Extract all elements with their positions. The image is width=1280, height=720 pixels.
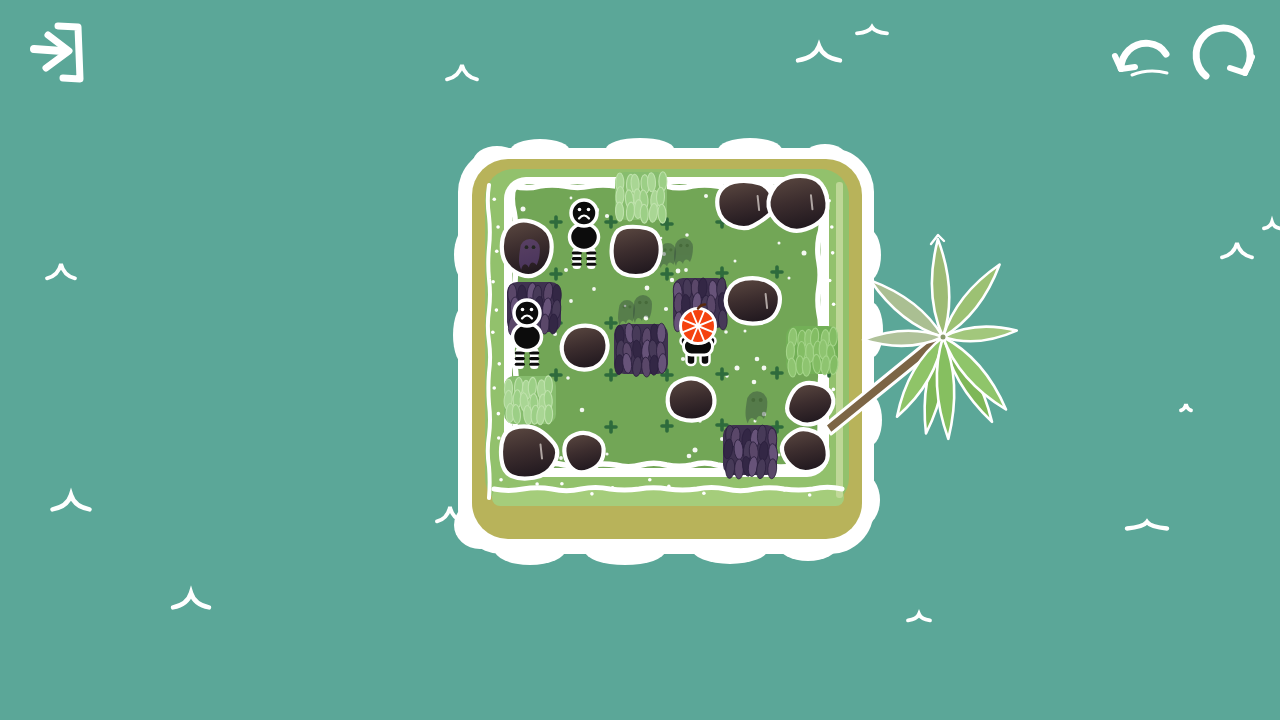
foam-blob [606, 138, 674, 160]
speckle [681, 357, 685, 361]
speckle [492, 386, 496, 390]
speckle [605, 214, 609, 218]
speckle [611, 486, 615, 490]
speckle [783, 488, 787, 492]
ghost-eye [532, 245, 536, 249]
wave-mark [447, 65, 477, 79]
undo-arrow-icon [1108, 32, 1174, 82]
ghost-eye [525, 245, 529, 249]
speckle [778, 454, 781, 457]
speckle [495, 249, 499, 253]
speckle [497, 436, 501, 440]
wave-mark [1264, 222, 1280, 228]
tuft-blade [647, 173, 656, 192]
speckle [564, 268, 568, 272]
wave-mark [1181, 404, 1191, 410]
speckle [751, 487, 755, 491]
speckle [559, 456, 563, 460]
speckle [832, 388, 836, 392]
speckle [808, 493, 812, 497]
restart-button[interactable] [1188, 20, 1260, 86]
speckle [735, 366, 740, 371]
speckle [702, 491, 706, 495]
monster-head [571, 200, 597, 226]
ghost-eye [759, 398, 763, 402]
speckle [592, 287, 596, 291]
exit-arrow-bracket-icon [22, 20, 88, 88]
speckle [832, 302, 836, 306]
speckle [685, 233, 689, 237]
speckle [496, 225, 500, 229]
speckle [670, 278, 674, 282]
bush-blade [718, 310, 727, 330]
speckle [605, 452, 608, 455]
speckle [590, 492, 594, 496]
grass-tuft [615, 172, 667, 224]
speckle [497, 362, 501, 366]
speckle [560, 482, 564, 486]
boulder [502, 220, 552, 276]
ghost-eye [679, 244, 682, 247]
wave-mark [1127, 522, 1167, 528]
palm-leaf [932, 239, 949, 337]
wave-mark [1222, 243, 1252, 257]
grass-tuft [786, 326, 839, 377]
speckle [778, 242, 781, 245]
purple-bush [614, 323, 668, 378]
tuft-blade [640, 204, 649, 223]
player-character [681, 305, 716, 366]
speckle [788, 277, 791, 280]
speckle [535, 482, 539, 486]
undo-button[interactable] [1108, 32, 1174, 82]
speckle [667, 485, 671, 489]
bush-blade [657, 323, 666, 343]
ghost-eye [623, 305, 626, 308]
wave-mark [798, 46, 840, 60]
wave-mark [47, 264, 75, 278]
palm-crown-center [940, 334, 947, 341]
tuft-blade [802, 357, 810, 376]
speckle [491, 330, 495, 334]
foam-blob [718, 138, 782, 162]
boulder [768, 176, 827, 231]
ghost-eye [638, 301, 641, 304]
ghost-eye [686, 244, 689, 247]
monster-eye [578, 208, 582, 212]
boulder [564, 433, 603, 473]
speckle [725, 487, 729, 491]
monster-eye [587, 208, 591, 212]
boulder [612, 227, 661, 276]
speckle [521, 207, 526, 212]
purple-bush [723, 425, 779, 480]
tuft-blade [544, 405, 552, 424]
monster-eye [530, 308, 534, 312]
grass-tuft [504, 376, 556, 425]
speckle [687, 454, 692, 459]
boulder [726, 278, 780, 324]
speckle [830, 225, 834, 229]
speckle [802, 251, 807, 256]
speckle [684, 268, 688, 272]
boulder [787, 383, 833, 425]
game-viewport [0, 0, 1280, 720]
monster-eye [521, 308, 525, 312]
ghost-eye [751, 398, 755, 402]
ghost-eye [664, 248, 667, 251]
speckle [497, 412, 501, 416]
speckle [569, 299, 573, 303]
speckle [492, 198, 496, 202]
speckle [645, 286, 650, 291]
speckle [566, 376, 570, 380]
speckle [724, 330, 728, 334]
wave-mark [857, 27, 887, 33]
speckle [704, 194, 708, 198]
speckle [580, 408, 585, 413]
foam-blob [585, 537, 665, 565]
boulder [782, 429, 828, 472]
speckle [734, 260, 737, 263]
ghost-eye [628, 305, 631, 308]
tuft-blade [615, 202, 624, 221]
speckle [744, 330, 747, 333]
wave-mark [53, 495, 90, 509]
wave-mark [173, 593, 209, 607]
speckle [664, 307, 668, 311]
game-scene [0, 0, 1280, 720]
speckle [762, 366, 767, 371]
tuft-blade [656, 187, 665, 206]
ghost-eye [669, 248, 672, 251]
speckle [495, 308, 499, 312]
boulder [562, 326, 608, 370]
shore-wavy-line [488, 185, 490, 498]
ghost-eye [645, 301, 648, 304]
exit-level-button[interactable] [22, 20, 88, 88]
wave-mark [908, 614, 930, 620]
restart-loop-icon [1188, 20, 1260, 86]
speckle [831, 251, 835, 255]
tuft-blade [829, 327, 837, 346]
speckle [648, 478, 652, 482]
speckle [828, 279, 832, 283]
speckle [693, 448, 698, 453]
speckle [755, 357, 760, 362]
speckle [570, 197, 573, 200]
monster-head [514, 300, 540, 326]
speckle [491, 280, 495, 284]
speckle [752, 380, 757, 385]
foam-blob [859, 302, 883, 358]
speckle [676, 269, 681, 274]
speckle [499, 478, 503, 482]
bush-blade [649, 355, 658, 375]
boulder [668, 378, 715, 420]
